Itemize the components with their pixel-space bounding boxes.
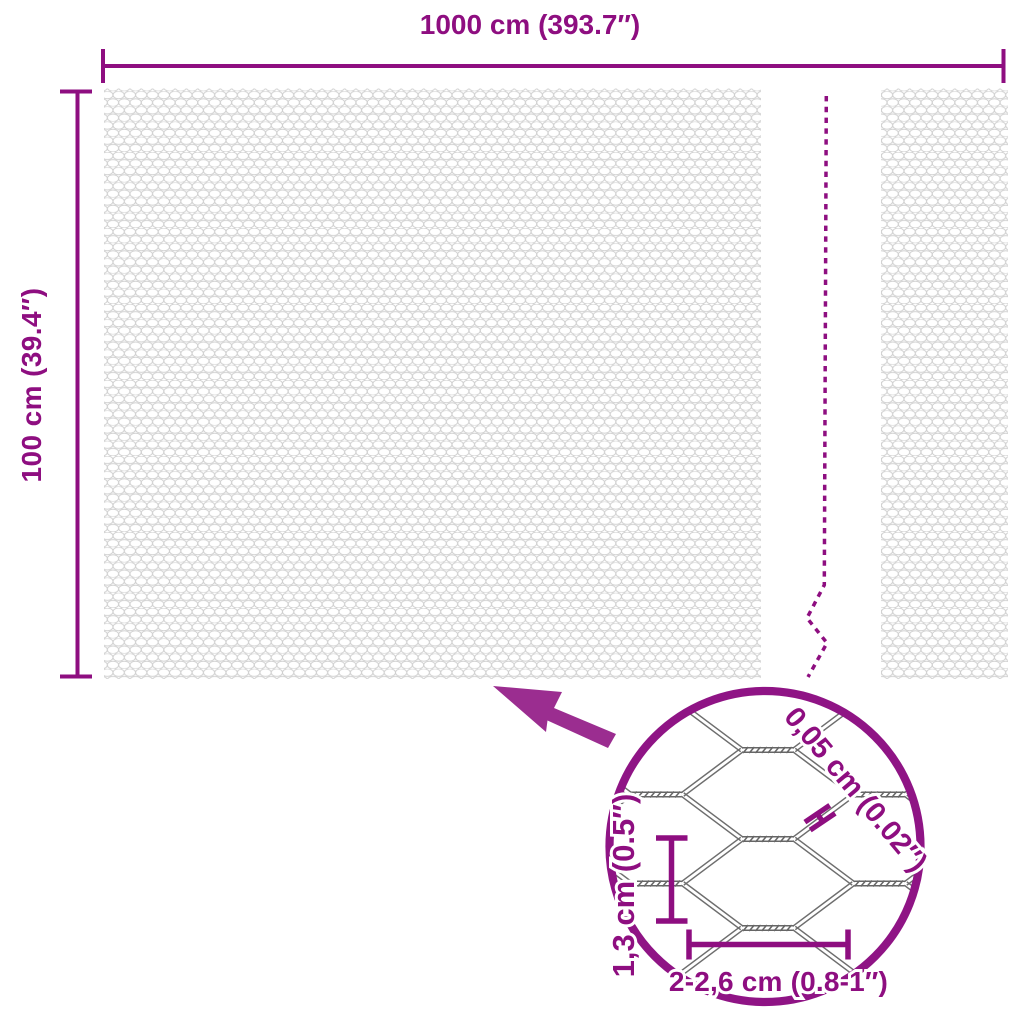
svg-text:2-2,6 cm (0.8-1″): 2-2,6 cm (0.8-1″): [669, 966, 888, 997]
svg-text:100 cm (39.4″): 100 cm (39.4″): [16, 288, 47, 483]
svg-text:1,3 cm (0.5″): 1,3 cm (0.5″): [606, 794, 641, 978]
svg-text:1000 cm (393.7″): 1000 cm (393.7″): [420, 9, 640, 40]
